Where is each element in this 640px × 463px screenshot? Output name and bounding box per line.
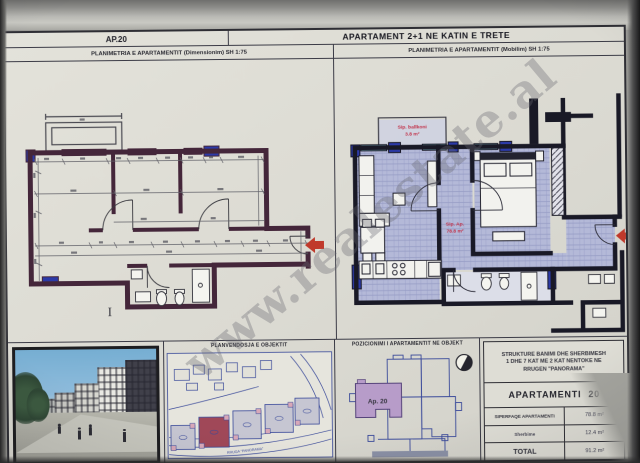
site-plan-drawing: RRUGA "PANORAMA": [166, 350, 334, 462]
furnished-plan-drawing: Sip. ballkoni 3.8 m²: [334, 56, 627, 337]
structure-line2: 1 DHE 7 KAT ME 2 KAT NENTOKE NE: [506, 358, 602, 365]
interior-walls: [88, 151, 267, 267]
apartment-area-label: Sip. Ap.: [446, 221, 465, 227]
floor-plans: Sip. ballkoni 3.8 m²: [5, 56, 627, 343]
position-plan-drawing: Ap. 20: [338, 348, 479, 459]
balcony-label: Sip. ballkoni: [398, 124, 428, 130]
wardrobe: [552, 148, 565, 216]
tree: [27, 388, 50, 422]
building-render-panel: [8, 342, 165, 463]
stray-mark: I: [108, 304, 113, 320]
photo-right-edge: [627, 0, 640, 463]
person: [123, 432, 126, 442]
building-render-image: [12, 346, 160, 463]
plan-sheet: AP.20 APARTAMENT 2+1 NE KATIN E TRETE PL…: [3, 25, 631, 463]
row-label: Sherbime: [485, 425, 565, 443]
dimension-plan-panel: [5, 59, 337, 342]
apartment-code: AP.20: [5, 31, 229, 47]
scanned-floorplan-photo: AP.20 APARTAMENT 2+1 NE KATIN E TRETE PL…: [0, 0, 640, 463]
dimension-figures: [33, 116, 289, 264]
north-compass-icon: [456, 354, 475, 373]
balcony-area: 3.8 m²: [405, 131, 420, 137]
entry-arrow: [305, 237, 324, 253]
photo-bottom-edge: [0, 456, 640, 463]
position-plan-title: POZICIONIMI I APARTAMENTIT NE OBJEKT: [337, 339, 477, 349]
bottom-panels: PLANVENDOSJA E OBJEKTIT: [8, 337, 628, 463]
structure-line3: RRUGEN "PANORAMA": [523, 366, 584, 373]
bathroom-fixtures: [131, 269, 209, 306]
furnished-plan-panel: Sip. ballkoni 3.8 m²: [334, 56, 627, 339]
structure-line1: STRUKTURE BANIMI DHE SHERBIMESH: [502, 350, 606, 357]
site-plan-panel: PLANVENDOSJA E OBJEKTIT: [164, 340, 337, 463]
bed-headboard: [480, 152, 536, 160]
person: [58, 427, 61, 434]
highlighted-apartment-tab: [358, 380, 366, 384]
entry-arrow: [616, 229, 626, 244]
position-plan-panel: POZICIONIMI I APARTAMENTIT NE OBJEKT: [335, 338, 481, 463]
highlighted-apartment-label: Ap. 20: [368, 398, 388, 405]
apartment-area-value: 78.8 m²: [446, 228, 463, 234]
dimension-plan-drawing: [9, 60, 330, 341]
photo-left-edge: [0, 0, 7, 463]
person: [89, 428, 92, 436]
person: [78, 430, 81, 439]
row-label: SIPERFAQE APARTAMENTI: [485, 407, 565, 425]
